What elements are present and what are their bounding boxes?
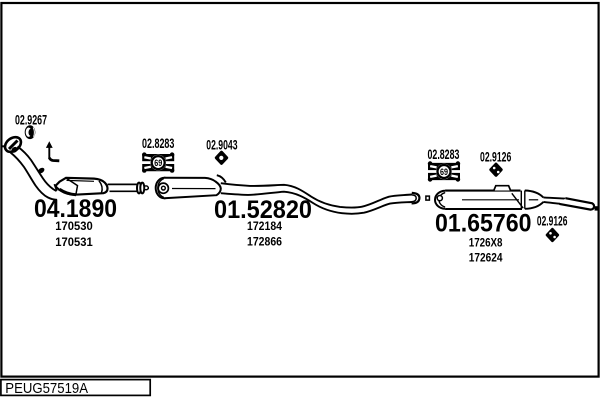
- svg-text:170531: 170531: [55, 235, 93, 249]
- svg-text:01.65760: 01.65760: [435, 210, 532, 238]
- svg-text:PEUG57519A: PEUG57519A: [5, 380, 88, 397]
- svg-text:170530: 170530: [55, 219, 93, 233]
- svg-text:172624: 172624: [469, 250, 503, 264]
- svg-text:02.9126: 02.9126: [537, 212, 568, 228]
- svg-text:172184: 172184: [247, 219, 282, 233]
- svg-text:02.9043: 02.9043: [206, 136, 237, 152]
- svg-text:02.8283: 02.8283: [142, 135, 175, 151]
- svg-text:02.8283: 02.8283: [428, 146, 460, 162]
- svg-text:02.9126: 02.9126: [480, 148, 511, 164]
- svg-text:1726X8: 1726X8: [469, 235, 503, 249]
- svg-text:172866: 172866: [247, 235, 282, 249]
- svg-text:02.9267: 02.9267: [15, 112, 47, 128]
